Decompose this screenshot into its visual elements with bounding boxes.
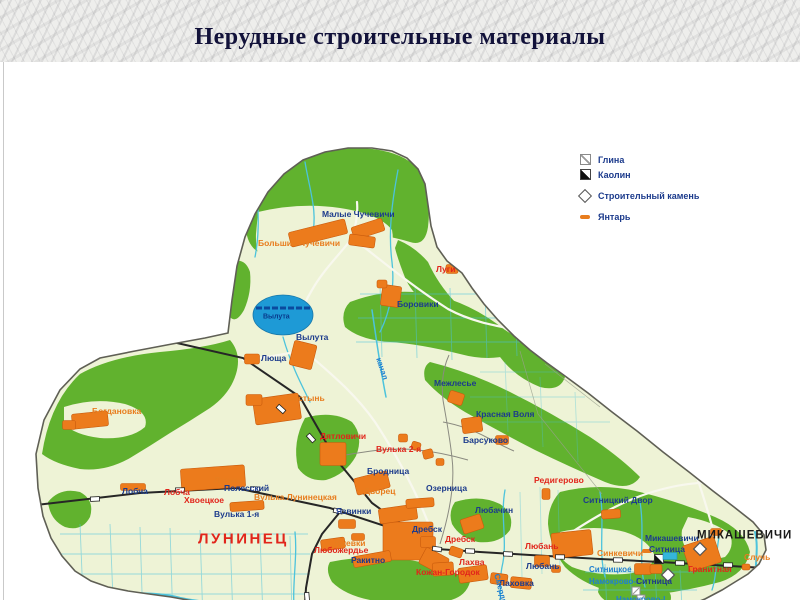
town-label: Ситница	[649, 545, 685, 554]
settlement-label: Богдановка	[92, 407, 141, 416]
river-label: Намокрово-I	[616, 596, 665, 600]
town-label: Барсуково	[463, 436, 508, 445]
map-area: Малые ЧучевичиБольшие ЧучевичиЛугиБорови…	[0, 62, 800, 600]
town-label: Красная Воля	[476, 410, 535, 419]
town-label: Лобча	[122, 487, 148, 496]
town-label: Бродница	[367, 467, 409, 476]
page-title: Нерудные строительные материалы	[0, 0, 800, 51]
amber-icon	[578, 215, 592, 219]
deposit-label: Дятловичи	[320, 432, 366, 441]
deposit-label: Редигерово	[534, 476, 584, 485]
legend-item-amber: Янтарь	[578, 209, 699, 224]
deposit-label: Дребск	[445, 535, 475, 544]
deposit-label: Гранитная	[688, 565, 732, 574]
town-label: Боровики	[397, 300, 439, 309]
town-label: Озерница	[426, 484, 467, 493]
deposit-label: Хвоецкое	[184, 496, 224, 505]
deposit-label: Кожан-Городок	[416, 568, 480, 577]
town-label: Ситница	[636, 577, 672, 586]
settlement-label: Дворец	[364, 487, 396, 496]
city-label: МИКАШЕВИЧИ	[697, 530, 792, 542]
settlement-label: Большие Чучевичи	[258, 239, 340, 248]
place-labels-layer: Малые ЧучевичиБольшие ЧучевичиЛугиБорови…	[0, 62, 800, 600]
town-label: Любань	[526, 562, 559, 571]
settlement-label: Вулька Лунинецкая	[254, 493, 337, 502]
clay-icon	[578, 154, 592, 165]
deposit-label: Любожердье	[314, 546, 368, 555]
river-label: канал	[374, 357, 389, 381]
legend-label: Строительный камень	[598, 191, 699, 201]
town-label: Малые Чучевичи	[322, 210, 395, 219]
lake-label: Вылута	[263, 314, 290, 321]
settlement-label: Синкевичи	[597, 549, 643, 558]
city-label: ЛУНИНЕЦ	[198, 532, 289, 547]
legend-item-clay: Глина	[578, 152, 699, 167]
town-label: Микашевичи	[645, 534, 699, 543]
settlement-label: Бостынь	[287, 394, 325, 403]
deposit-label: Любань	[525, 542, 558, 551]
town-label: Ракитно	[351, 556, 385, 565]
town-label: Дребск	[412, 525, 442, 534]
legend-label: Глина	[598, 155, 624, 165]
legend-item-kaolin: Каолин	[578, 167, 699, 182]
legend-label: Янтарь	[598, 212, 630, 222]
deposit-label: Вулька 2-я	[376, 445, 421, 454]
map-legend: Глина Каолин Строительный камень Янтарь	[578, 152, 699, 224]
town-label: Люща	[261, 354, 286, 363]
river-label: Намокрово-I	[589, 578, 638, 586]
town-label: Межлесье	[434, 379, 476, 388]
legend-label: Каолин	[598, 170, 631, 180]
town-label: Ситницкий Двор	[583, 496, 653, 505]
town-label: Вулька 1-я	[214, 510, 259, 519]
kaolin-icon	[578, 169, 592, 180]
deposit-label: Лахва	[459, 558, 484, 567]
slide: Нерудные строительные материалы	[0, 0, 800, 600]
town-label: Язвинки	[336, 507, 371, 516]
river-label: Ситницкое	[589, 566, 632, 574]
slide-edge-line	[3, 62, 4, 600]
slide-header: Нерудные строительные материалы	[0, 0, 800, 62]
deposit-label: Луги	[436, 265, 455, 274]
settlement-label: Случь	[744, 553, 770, 562]
town-label: Вылута	[296, 333, 328, 342]
town-label: Любачин	[475, 506, 513, 515]
stone-icon	[578, 191, 592, 201]
legend-item-stone: Строительный камень	[578, 188, 699, 203]
